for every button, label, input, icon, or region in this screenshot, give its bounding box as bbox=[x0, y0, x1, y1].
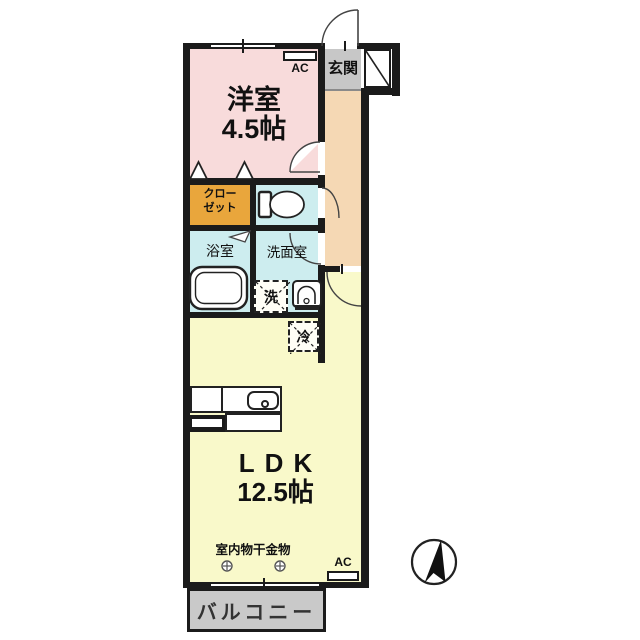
wall-right-main bbox=[361, 88, 369, 588]
toilet-room bbox=[256, 185, 318, 225]
ac-label-ldk: AC bbox=[327, 556, 359, 569]
wall-mid-vertical-a bbox=[318, 43, 325, 142]
entrance-door-tick bbox=[344, 41, 346, 51]
wall-closet-toilet bbox=[250, 185, 256, 225]
wall-hall-bottom bbox=[318, 266, 340, 272]
kitchen-counter-low bbox=[225, 413, 282, 432]
ldk-label: LDK bbox=[190, 450, 361, 477]
wall-room-bottom bbox=[183, 178, 325, 185]
entrance-step-line bbox=[325, 89, 361, 91]
refrigerator-space: 冷 bbox=[288, 321, 319, 352]
ac-unit-western-room bbox=[283, 51, 317, 61]
kitchen-counter-divider bbox=[221, 388, 223, 411]
closet-label-line2: ゼット bbox=[190, 203, 250, 215]
ac-unit-ldk bbox=[327, 571, 359, 581]
ac-label-western-room: AC bbox=[283, 62, 317, 75]
kitchen-stub-slot bbox=[192, 419, 222, 427]
balcony-label: バルコニー bbox=[197, 596, 317, 625]
entrance-label: 玄関 bbox=[323, 61, 363, 77]
compass-icon bbox=[412, 540, 456, 584]
washing-machine-space: 洗 bbox=[254, 280, 288, 313]
balcony: バルコニー bbox=[187, 588, 326, 632]
laundry-hardware-label: 室内物干金物 bbox=[193, 544, 313, 557]
washroom-label: 洗面室 bbox=[256, 246, 318, 260]
western-room-label: 洋室 bbox=[190, 86, 318, 114]
ldk-door-nook bbox=[325, 272, 361, 318]
entrance-door-icon bbox=[322, 10, 358, 46]
refrigerator-label: 冷 bbox=[290, 323, 317, 350]
ldk-size: 12.5帖 bbox=[190, 479, 361, 506]
wall-kitchen-stub bbox=[187, 415, 228, 432]
washing-machine-label: 洗 bbox=[256, 282, 286, 311]
kitchen-counter bbox=[190, 386, 282, 413]
window-top-tick bbox=[242, 39, 244, 53]
western-room-size: 4.5帖 bbox=[190, 115, 318, 143]
ldk-door-tick bbox=[341, 264, 343, 274]
shoe-cabinet bbox=[364, 49, 391, 88]
closet-label-line1: クロー bbox=[190, 189, 250, 201]
floorplan-canvas: 洗 冷 bbox=[0, 0, 640, 640]
hallway bbox=[325, 90, 361, 266]
kitchen-sink-drain bbox=[261, 400, 269, 408]
bathroom-label: 浴室 bbox=[190, 244, 250, 259]
